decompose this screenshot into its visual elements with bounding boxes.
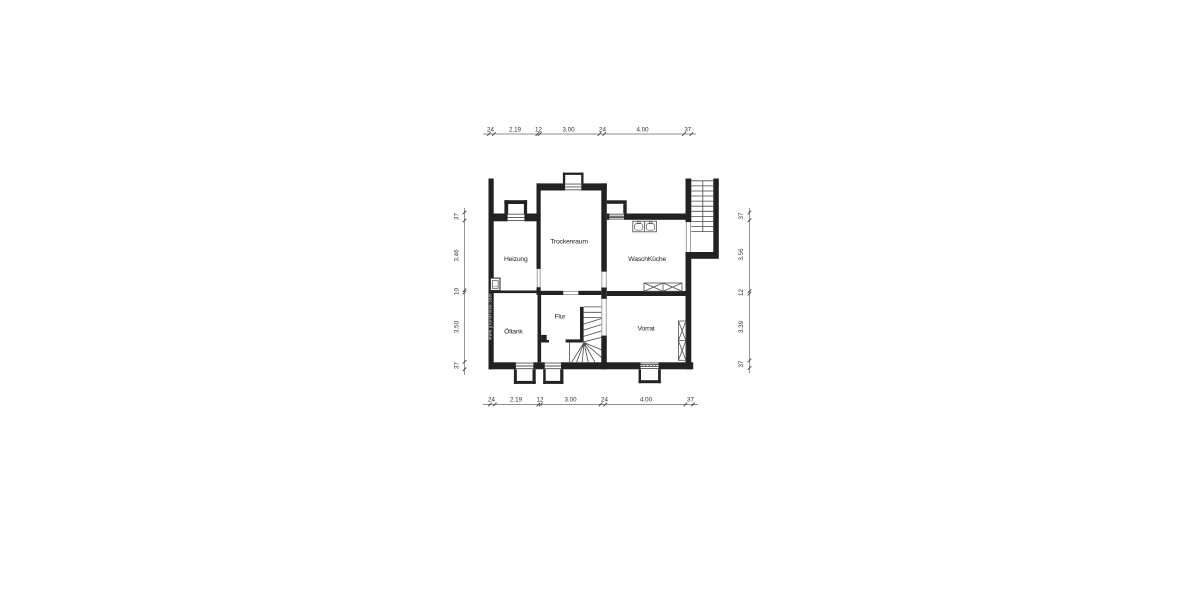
svg-text:4.00: 4.00 [640, 397, 653, 404]
svg-text:WaschKüche: WaschKüche [628, 256, 666, 263]
svg-text:Trockenraum: Trockenraum [550, 238, 588, 245]
svg-text:Flur: Flur [554, 313, 566, 320]
svg-text:10: 10 [454, 288, 461, 295]
svg-text:2.19: 2.19 [509, 126, 522, 133]
svg-text:3.56: 3.56 [738, 248, 745, 261]
svg-text:12: 12 [537, 397, 544, 404]
svg-text:3.50: 3.50 [454, 320, 461, 333]
svg-text:37: 37 [454, 213, 461, 220]
svg-text:12: 12 [738, 289, 745, 296]
svg-text:37: 37 [738, 212, 745, 219]
svg-text:Öltank: Öltank [504, 327, 523, 335]
svg-text:Heizung: Heizung [504, 256, 528, 263]
svg-text:www.grundrisse.com: www.grundrisse.com [488, 293, 493, 340]
svg-text:3.46: 3.46 [454, 249, 461, 262]
svg-text:3.00: 3.00 [564, 397, 577, 404]
svg-text:37: 37 [454, 362, 461, 369]
svg-text:3.39: 3.39 [738, 320, 745, 333]
svg-text:37: 37 [738, 360, 745, 367]
svg-text:24: 24 [601, 397, 608, 404]
svg-text:24: 24 [599, 126, 606, 133]
svg-text:Vorrat: Vorrat [638, 325, 655, 332]
svg-text:3.00: 3.00 [562, 126, 575, 133]
svg-text:24: 24 [487, 126, 494, 133]
svg-text:2.19: 2.19 [510, 397, 523, 404]
svg-text:24: 24 [488, 397, 495, 404]
svg-text:37: 37 [684, 126, 691, 133]
svg-text:4.00: 4.00 [636, 126, 649, 133]
svg-text:37: 37 [687, 397, 694, 404]
svg-text:12: 12 [535, 126, 542, 133]
